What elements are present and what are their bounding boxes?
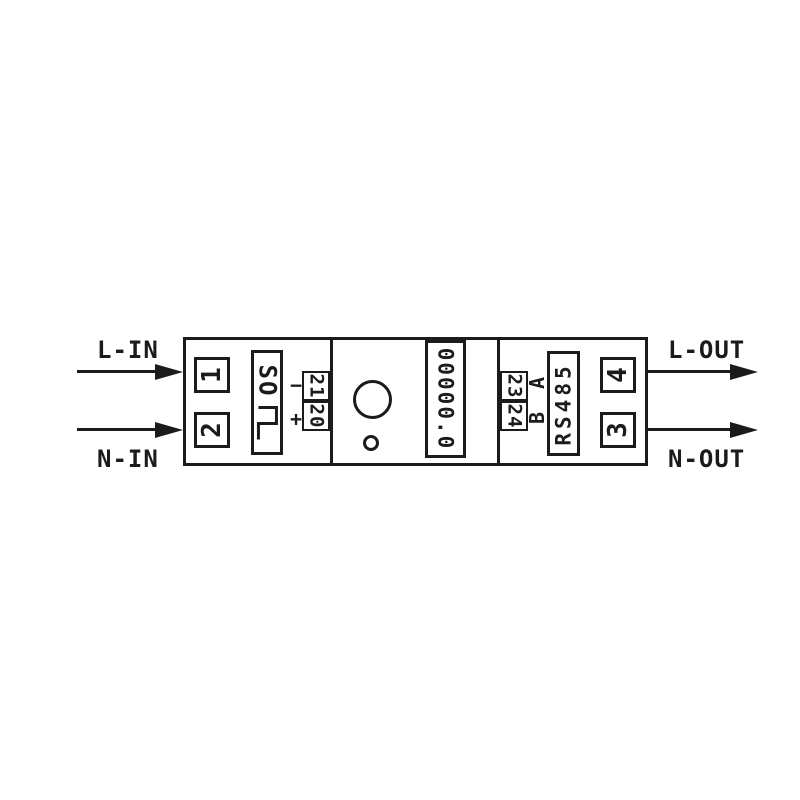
terminal-20-number: 20 <box>305 404 327 429</box>
display-window: 00000.0 <box>425 340 466 458</box>
terminal-2-number: 2 <box>197 422 227 438</box>
pulse-output-box: SO <box>251 350 283 455</box>
terminal-1-box: 1 <box>194 357 230 393</box>
line-out-wire <box>648 370 732 373</box>
neutral-out-arrow-icon <box>730 422 758 438</box>
neutral-in-arrow-icon <box>155 422 183 438</box>
line-out-label: L-OUT <box>668 336 745 364</box>
display-value: 00000.0 <box>434 348 458 451</box>
rs485-b-label-wrap: B <box>525 406 549 430</box>
rs485-a-label-wrap: A <box>525 371 549 395</box>
led-indicator-circle <box>363 435 379 451</box>
section-divider-left <box>330 337 333 466</box>
rs485-label: RS485 <box>552 362 576 445</box>
terminal-24-number: 24 <box>503 404 525 429</box>
line-in-label: L-IN <box>97 336 159 364</box>
terminal-4-box: 4 <box>600 357 636 393</box>
neutral-out-wire <box>648 428 732 431</box>
neutral-in-label: N-IN <box>97 445 159 473</box>
wiring-diagram: L-IN N-IN L-OUT N-OUT 1 2 SO − + 21 20 <box>0 0 800 800</box>
terminal-20-box: 20 <box>302 401 330 431</box>
terminal-24-box: 24 <box>500 401 528 431</box>
terminal-23-number: 23 <box>503 374 525 399</box>
neutral-out-label: N-OUT <box>668 445 745 473</box>
terminal-3-box: 3 <box>600 412 636 448</box>
pulse-waveform-icon <box>255 405 279 441</box>
terminal-21-number: 21 <box>305 374 327 399</box>
pulse-output-content: SO <box>253 364 281 441</box>
terminal-1-number: 1 <box>197 367 227 383</box>
terminal-2-box: 2 <box>194 412 230 448</box>
rs485-a-label: A <box>525 377 549 389</box>
terminal-23-box: 23 <box>500 371 528 401</box>
terminal-4-number: 4 <box>603 367 633 383</box>
push-button-circle <box>353 380 392 419</box>
terminal-21-box: 21 <box>302 371 330 401</box>
pulse-output-label: SO <box>253 364 281 397</box>
line-in-wire <box>77 370 158 373</box>
line-out-arrow-icon <box>730 364 758 380</box>
terminal-3-number: 3 <box>603 422 633 438</box>
neutral-in-wire <box>77 428 158 431</box>
rs485-box: RS485 <box>547 351 580 456</box>
line-in-arrow-icon <box>155 364 183 380</box>
rs485-b-label: B <box>525 412 549 424</box>
